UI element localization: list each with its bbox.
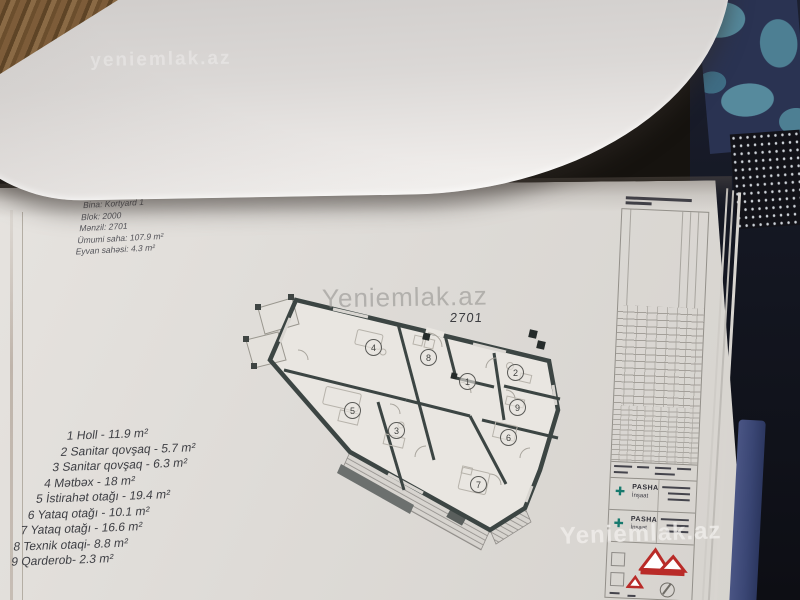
revision-grid <box>611 405 699 465</box>
red-triangle-logo <box>638 545 689 577</box>
watermark: Yeniemlak.az <box>560 517 722 551</box>
room-number-2: 2 <box>507 364 524 381</box>
speckled-fabric <box>730 130 800 230</box>
floor-plan-drawing <box>238 278 578 563</box>
room-number-8: 8 <box>420 349 437 366</box>
stamp-square-icon <box>610 572 625 587</box>
room-number-4: 4 <box>365 339 382 356</box>
curled-page: yeniemlak.az <box>0 0 735 203</box>
column-line <box>694 212 699 308</box>
room-number-5: 5 <box>344 402 361 419</box>
apartment-number-label: 2701 <box>449 310 483 325</box>
red-triangle-small-icon <box>626 575 645 590</box>
revision-grid <box>614 305 704 409</box>
room-number-9: 9 <box>509 399 526 416</box>
room-number-3: 3 <box>388 422 405 439</box>
pasha-cross-icon: ✚ <box>615 485 626 497</box>
room-number-1: 1 <box>459 373 476 390</box>
column-line <box>678 212 683 308</box>
company-sub: İnşaat <box>632 493 649 500</box>
column-line <box>686 212 691 308</box>
floor-plan: 2701 1 2 3 4 5 6 7 8 9 <box>238 278 578 563</box>
room-number-6: 6 <box>500 429 517 446</box>
page-gutter-shadow <box>10 210 13 600</box>
north-arrow-icon <box>659 582 675 598</box>
room-number-7: 7 <box>470 476 487 493</box>
watermark-faint: yeniemlak.az <box>90 48 232 72</box>
company-row: ✚ PASHA İnşaat <box>609 477 696 514</box>
photo-of-floorplan-booklet: Bina: Kortyard 1 Blok: 2000 Mənzil: 2701… <box>0 0 800 600</box>
column-line <box>626 209 631 305</box>
stamp-area <box>605 541 693 600</box>
stamp-square-icon <box>611 552 626 567</box>
room-area-list: 1 Holl - 11.9 m² 2 Sanitar qovşaq - 5.7 … <box>10 422 250 570</box>
watermark: Yeniemlak.az <box>322 281 488 315</box>
company-name: PASHA <box>632 484 659 492</box>
